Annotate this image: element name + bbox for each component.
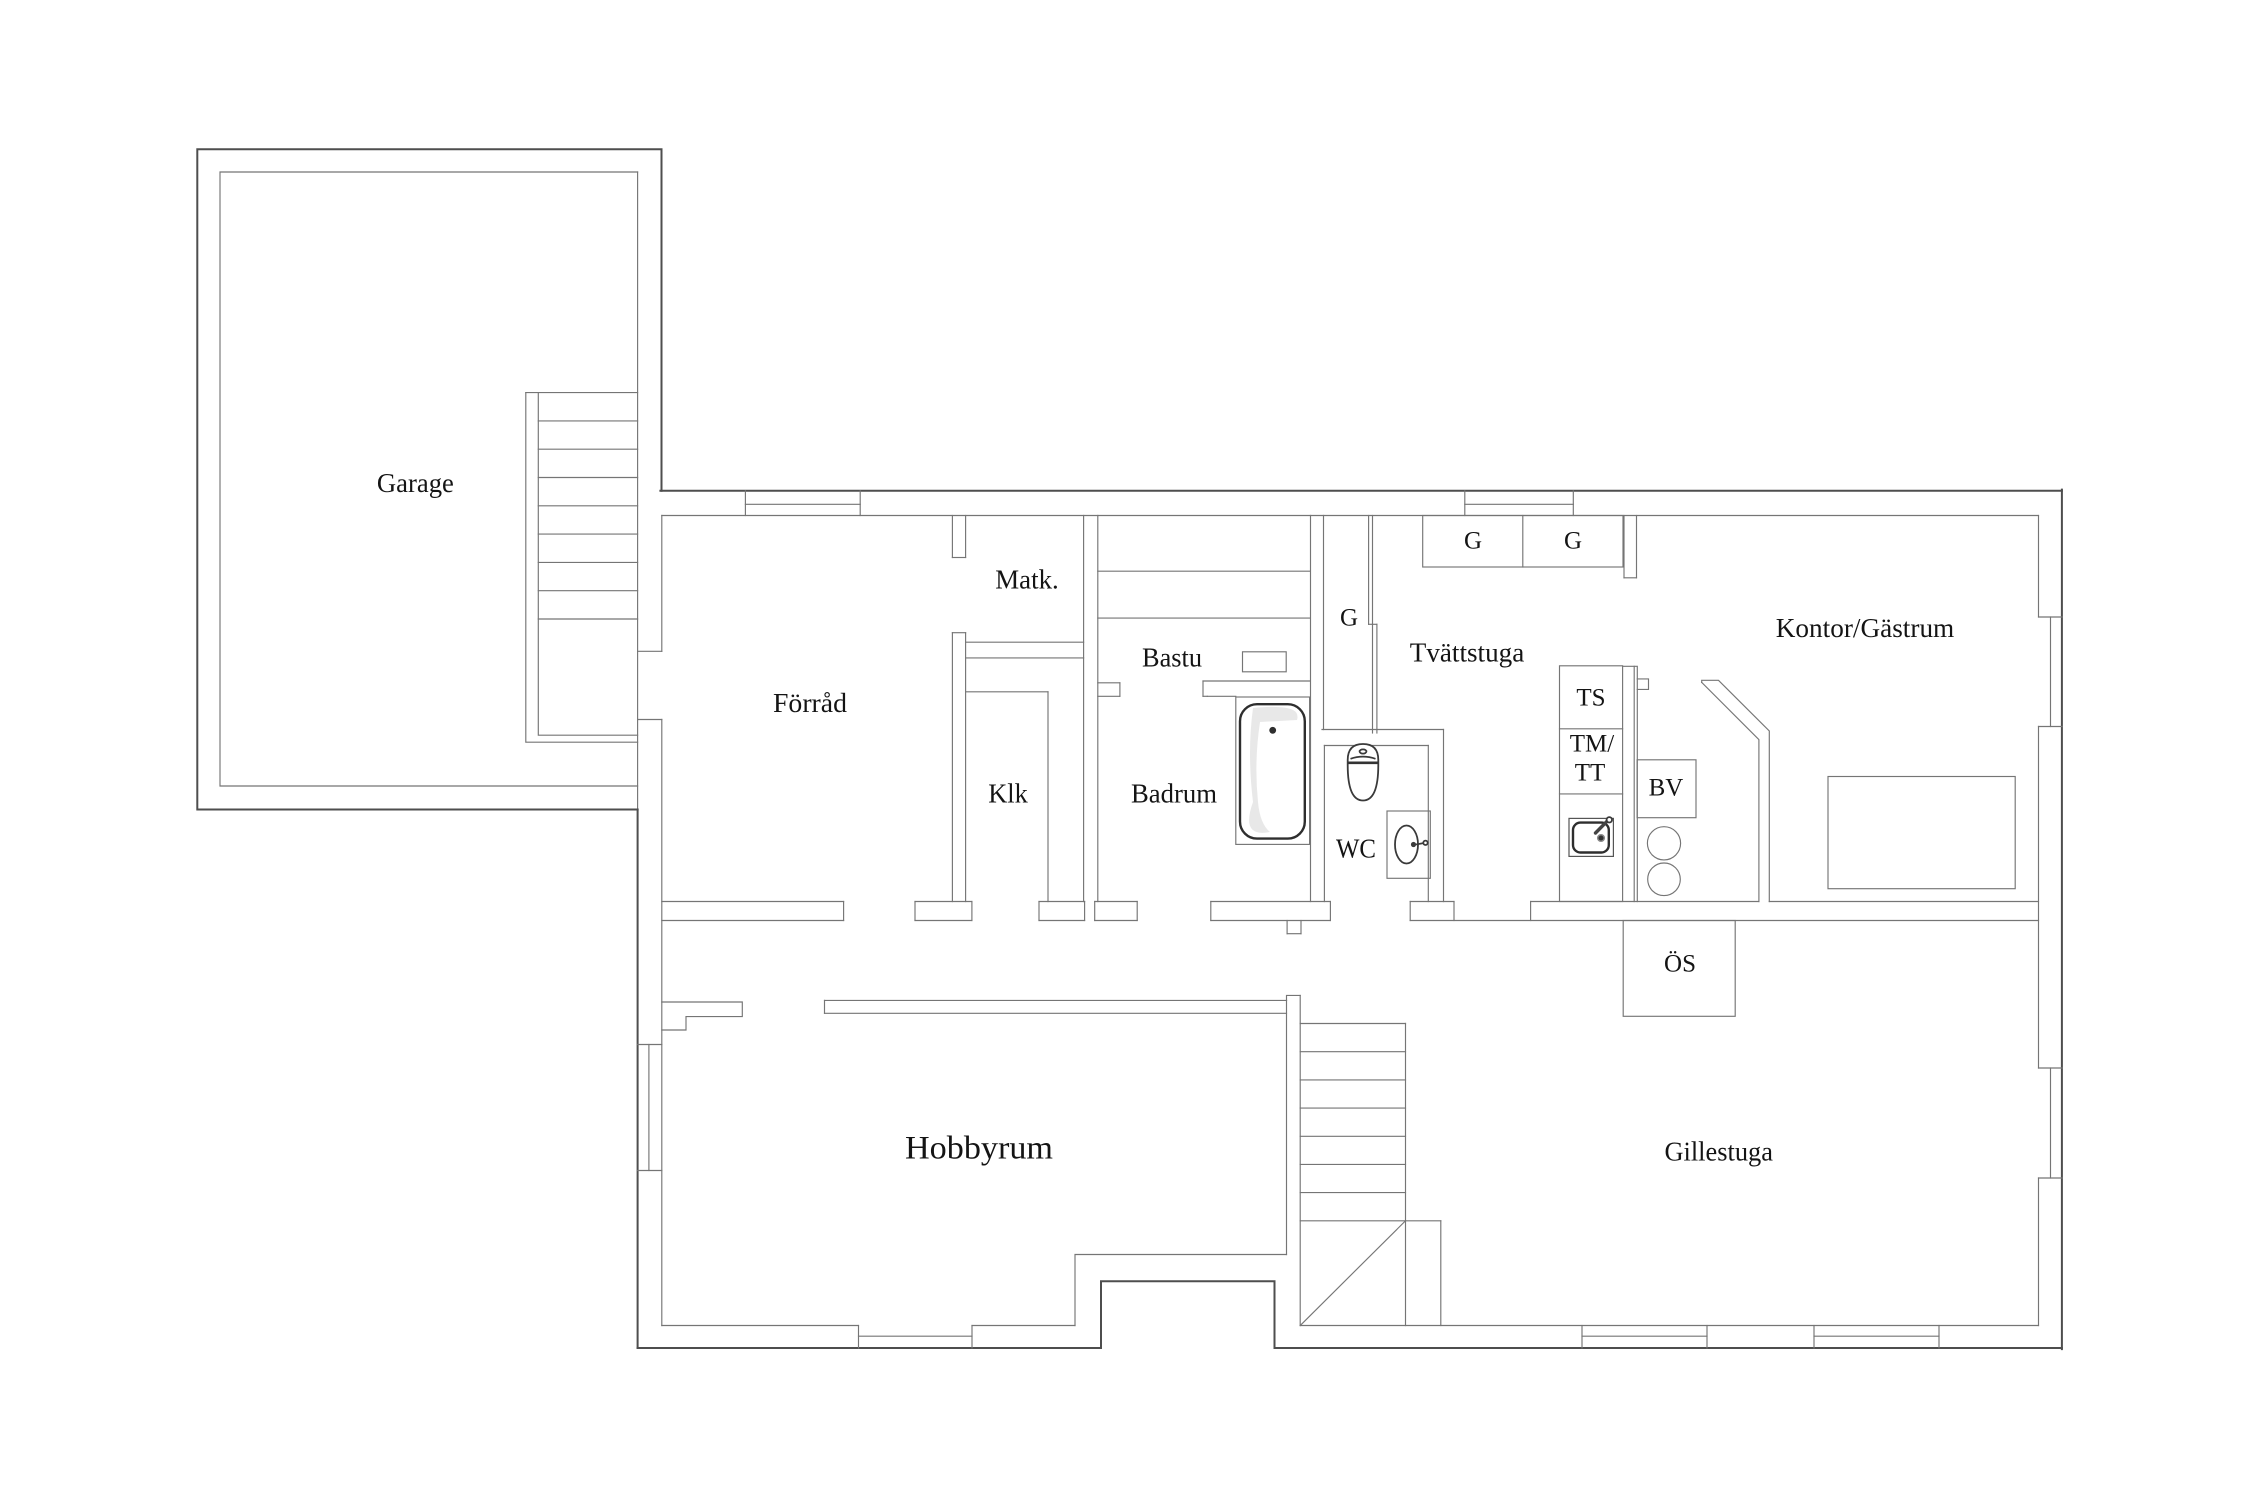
svg-text:Förråd: Förråd — [773, 688, 848, 718]
svg-text:Gillestuga: Gillestuga — [1664, 1137, 1773, 1167]
svg-text:G: G — [1464, 528, 1482, 555]
svg-text:Bastu: Bastu — [1142, 643, 1202, 673]
svg-text:ÖS: ÖS — [1664, 951, 1696, 978]
svg-text:Tvättstuga: Tvättstuga — [1410, 638, 1525, 668]
svg-text:G: G — [1564, 528, 1582, 555]
svg-text:TT: TT — [1575, 760, 1606, 787]
svg-text:Kontor/Gästrum: Kontor/Gästrum — [1776, 613, 1955, 643]
svg-text:TS: TS — [1576, 685, 1605, 712]
svg-text:G: G — [1340, 605, 1358, 632]
svg-text:WC: WC — [1336, 834, 1376, 864]
svg-text:Klk: Klk — [988, 779, 1028, 809]
svg-text:Badrum: Badrum — [1131, 779, 1217, 809]
svg-text:Garage: Garage — [377, 468, 454, 498]
svg-text:TM/: TM/ — [1570, 731, 1615, 758]
svg-text:Matk.: Matk. — [995, 565, 1059, 595]
svg-text:Hobbyrum: Hobbyrum — [905, 1131, 1053, 1167]
svg-text:BV: BV — [1649, 775, 1684, 802]
